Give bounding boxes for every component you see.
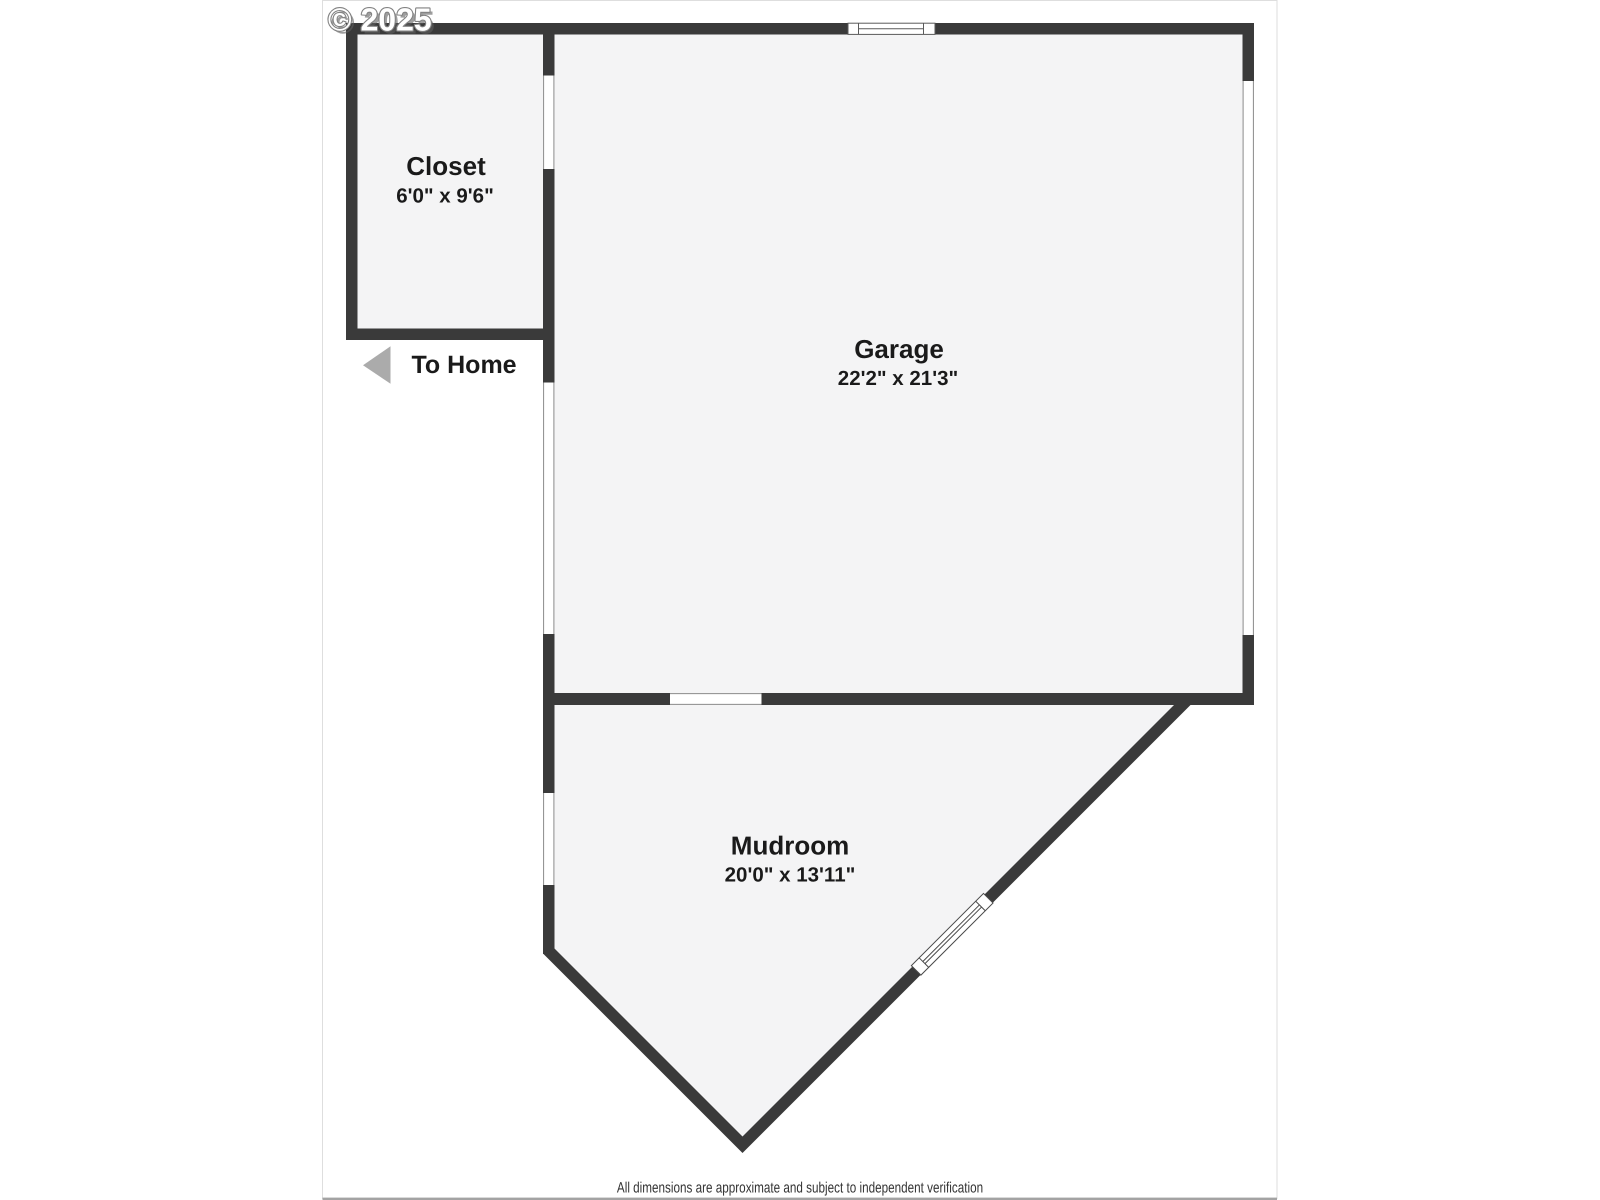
svg-text:Mudroom: Mudroom (731, 831, 849, 861)
svg-text:6'0" x 9'6": 6'0" x 9'6" (396, 185, 494, 208)
svg-text:Closet: Closet (406, 151, 486, 181)
svg-text:Garage: Garage (854, 334, 944, 364)
svg-text:20'0" x 13'11": 20'0" x 13'11" (725, 864, 856, 887)
svg-text:All dimensions are approximate: All dimensions are approximate and subje… (617, 1180, 983, 1197)
svg-text:To Home: To Home (412, 351, 517, 379)
svg-text:© 2025: © 2025 (328, 2, 432, 38)
svg-text:22'2" x 21'3": 22'2" x 21'3" (838, 367, 958, 390)
